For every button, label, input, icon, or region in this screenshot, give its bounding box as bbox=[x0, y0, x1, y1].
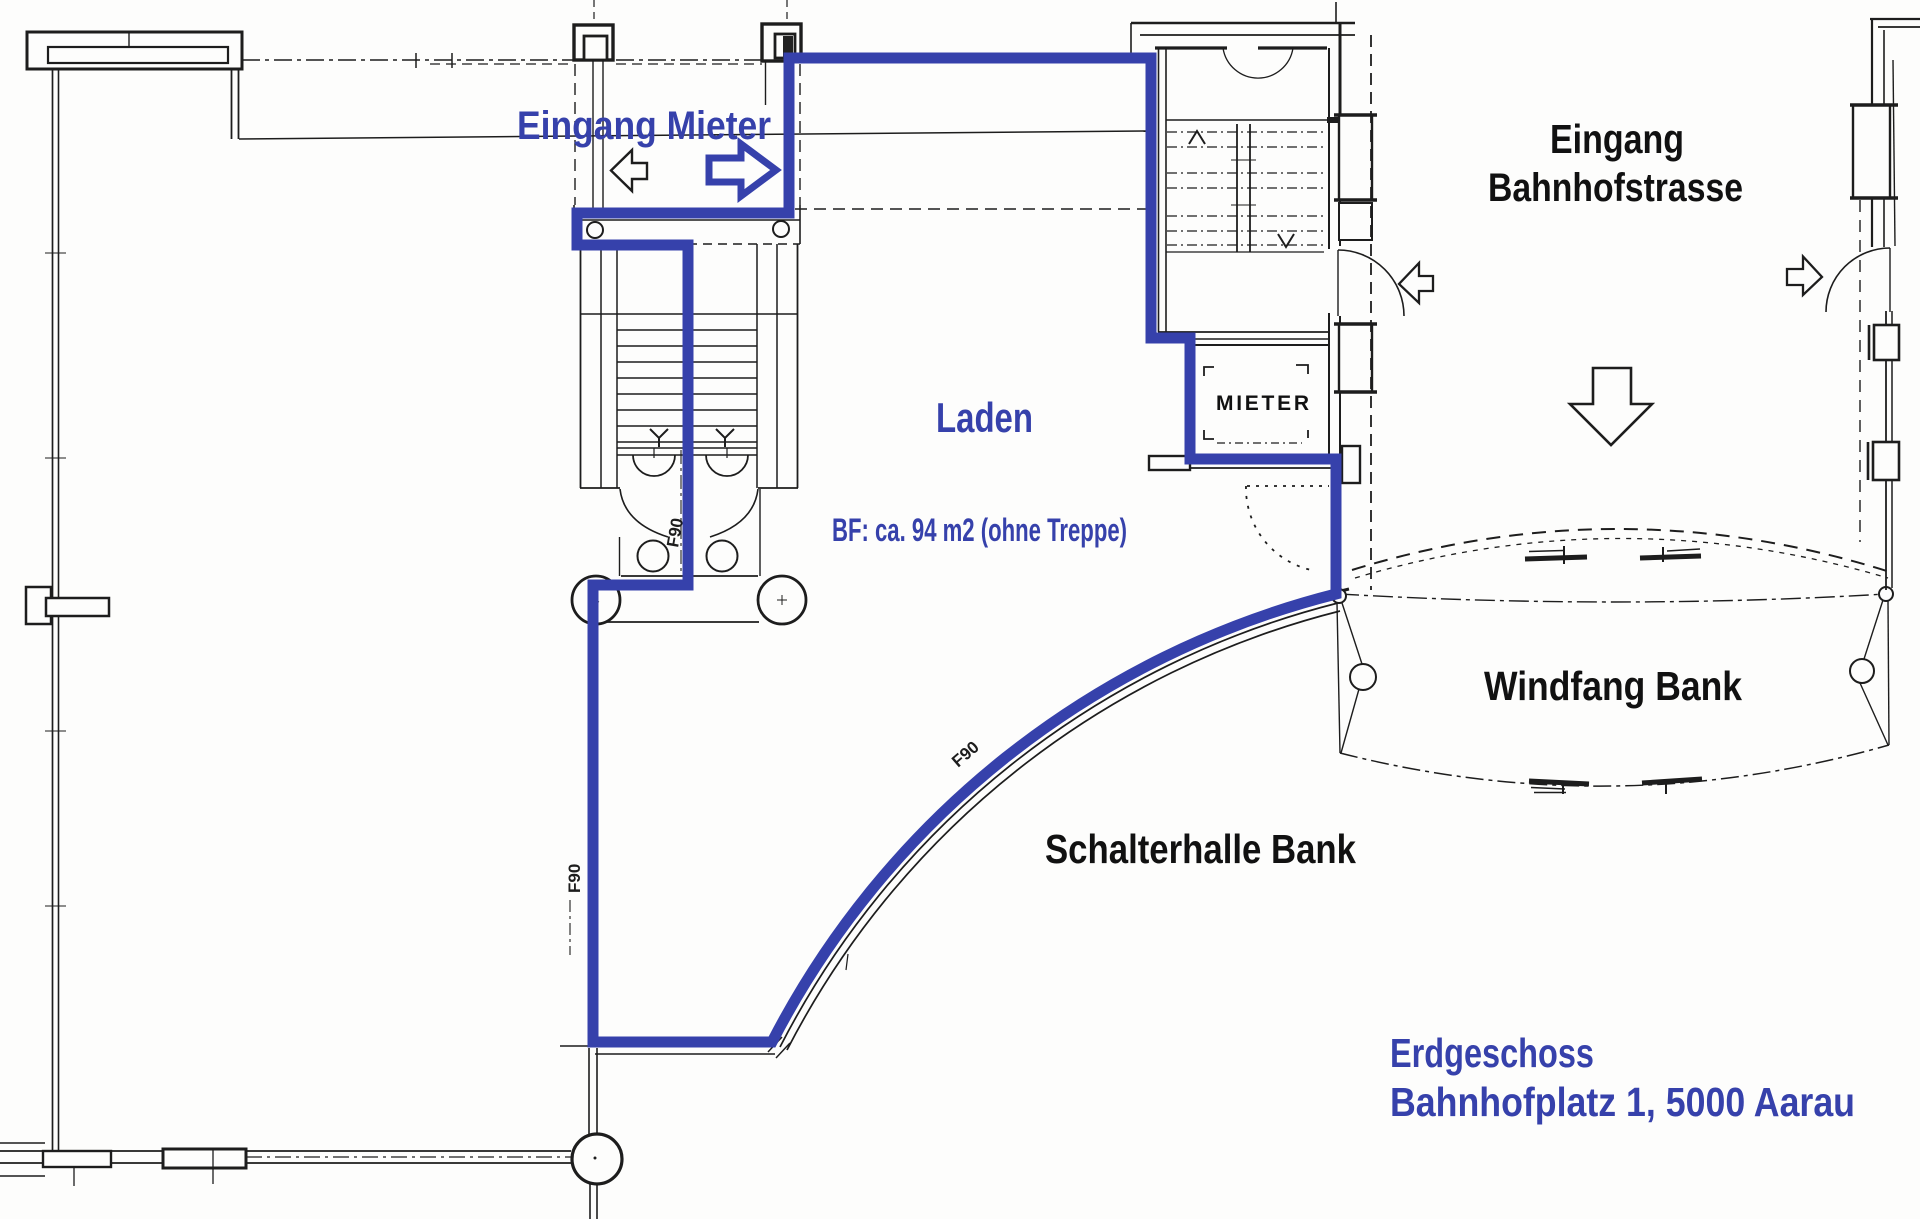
svg-text:Windfang Bank: Windfang Bank bbox=[1484, 663, 1742, 709]
svg-text:BF: ca. 94 m2 (ohne Treppe): BF: ca. 94 m2 (ohne Treppe) bbox=[832, 512, 1127, 548]
svg-text:F90: F90 bbox=[948, 737, 983, 771]
svg-text:Bahnhofstrasse: Bahnhofstrasse bbox=[1488, 166, 1743, 210]
svg-text:Erdgeschoss: Erdgeschoss bbox=[1390, 1030, 1594, 1076]
svg-text:Eingang Mieter: Eingang Mieter bbox=[517, 104, 771, 148]
svg-text:Schalterhalle Bank: Schalterhalle Bank bbox=[1045, 826, 1356, 872]
svg-text:Eingang: Eingang bbox=[1550, 116, 1684, 162]
svg-text:MIETER: MIETER bbox=[1216, 392, 1309, 415]
svg-text:F90: F90 bbox=[565, 864, 584, 893]
svg-text:Laden: Laden bbox=[936, 394, 1033, 441]
svg-text:Bahnhofplatz 1, 5000 Aarau: Bahnhofplatz 1, 5000 Aarau bbox=[1390, 1079, 1855, 1125]
